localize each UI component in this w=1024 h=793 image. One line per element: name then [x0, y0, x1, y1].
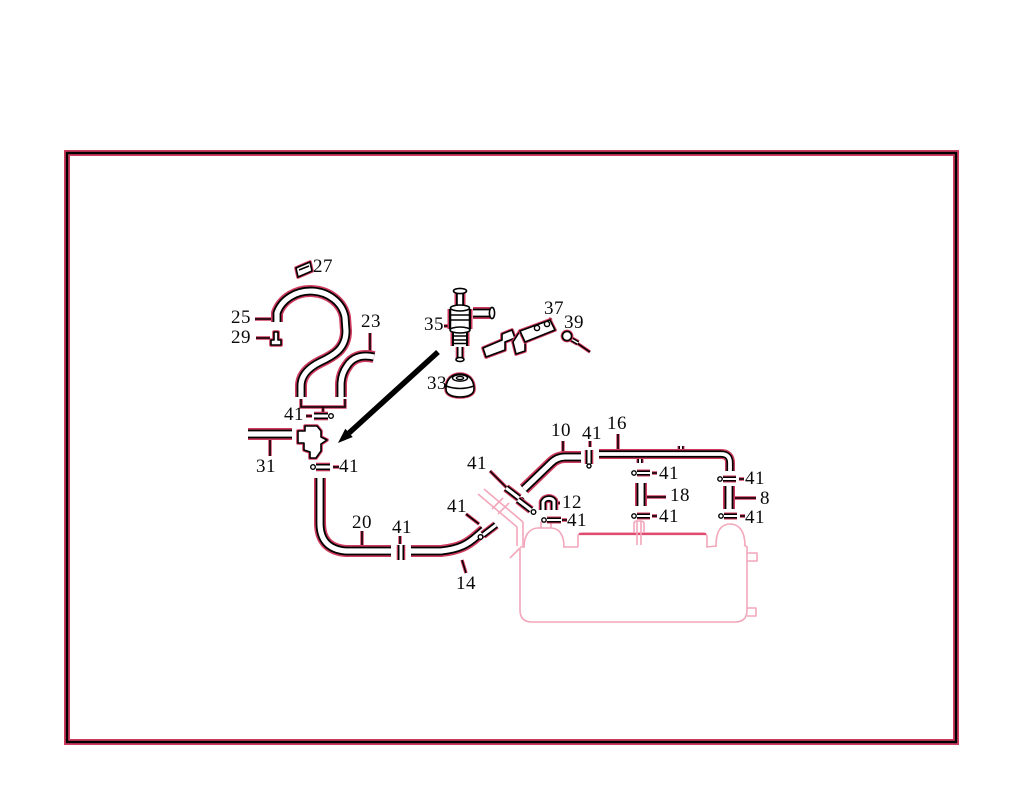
small-valve-fitting — [298, 426, 327, 458]
part-label-41-b: 41 — [339, 457, 359, 478]
connector-41-i — [632, 514, 650, 518]
part-10-hose — [524, 457, 581, 489]
part-label-33: 33 — [427, 374, 447, 395]
part-label-41-d: 41 — [447, 497, 467, 518]
part-label-41-a: 41 — [284, 405, 304, 426]
valve-mid-collar — [450, 327, 470, 333]
part-label-39: 39 — [564, 313, 584, 334]
connector-41-j — [718, 477, 736, 481]
tank-left-dome — [524, 522, 564, 547]
tank-side-tabs — [747, 553, 757, 616]
part-label-41-c: 41 — [392, 518, 412, 539]
parts-diagram-page: 27 25 29 23 35 37 39 33 41 31 41 20 41 4… — [0, 0, 1024, 793]
parts-diagram-canvas — [0, 0, 1024, 793]
part-33-grommet — [446, 374, 474, 397]
part-37-bracket — [483, 320, 555, 357]
part-label-41-k: 41 — [745, 508, 765, 529]
valve-top-flare — [454, 288, 467, 293]
connector-41-f — [587, 450, 591, 468]
part-label-20: 20 — [352, 513, 372, 534]
part-label-16: 16 — [607, 414, 627, 435]
valve-collar — [451, 305, 470, 311]
part-label-29: 29 — [231, 328, 251, 349]
part-label-41-h: 41 — [659, 464, 679, 485]
part-label-31: 31 — [256, 457, 276, 478]
part-label-41-f: 41 — [582, 424, 602, 445]
connector-41-k — [719, 514, 737, 518]
part-14-hose — [411, 530, 484, 551]
hose-end-bracket — [301, 399, 345, 413]
part-23-hose — [341, 356, 374, 397]
part-label-41-g: 41 — [567, 511, 587, 532]
connector-41-b — [311, 465, 330, 470]
part-27-clip — [296, 262, 312, 277]
part-label-41-i: 41 — [659, 507, 679, 528]
part-label-35: 35 — [424, 315, 444, 336]
connector-41-g — [542, 518, 561, 522]
frame-border — [67, 153, 956, 742]
part-label-10: 10 — [551, 421, 571, 442]
part-12-elbow — [543, 498, 554, 510]
part-label-27: 27 — [313, 257, 333, 278]
valve-tip — [456, 358, 464, 362]
part-29-plug — [271, 332, 281, 345]
fuel-tank-outline — [478, 489, 757, 622]
part-label-41-j: 41 — [745, 469, 765, 490]
part-label-18: 18 — [670, 486, 690, 507]
part-label-37: 37 — [544, 299, 564, 320]
connector-41-a — [314, 414, 333, 419]
valve-nozzle-flare — [489, 307, 494, 318]
part-label-23: 23 — [361, 312, 381, 333]
tank-body — [520, 546, 747, 622]
part-label-41-e: 41 — [467, 454, 487, 475]
tank-top-edge — [520, 545, 747, 547]
tank-right-dome — [716, 524, 745, 546]
part-label-14: 14 — [456, 574, 476, 595]
connector-41-h — [632, 471, 650, 475]
part-label-25: 25 — [231, 308, 251, 329]
